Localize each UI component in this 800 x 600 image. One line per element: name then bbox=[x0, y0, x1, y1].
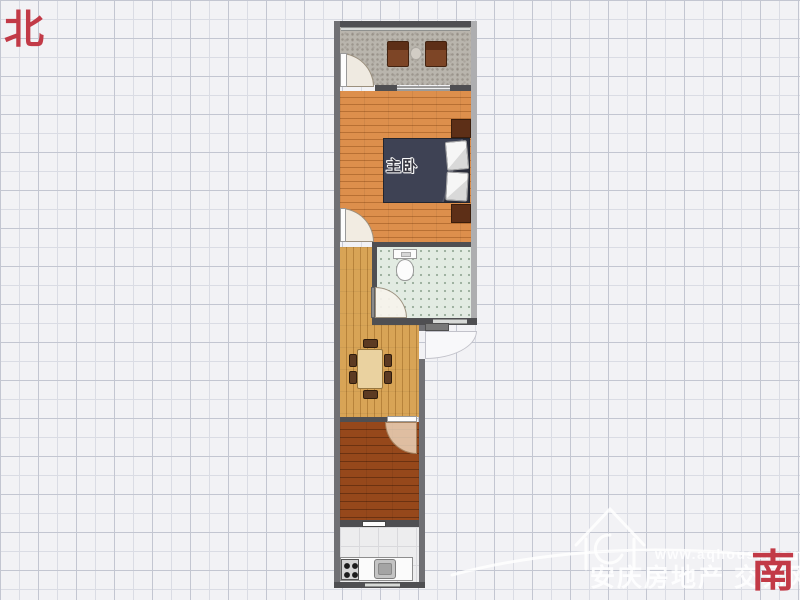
dining-chair-icon bbox=[349, 354, 357, 367]
wall-east-lower-b bbox=[419, 359, 425, 588]
balcony-chair-icon bbox=[387, 41, 409, 67]
dining-chair-icon bbox=[384, 371, 392, 384]
toilet-tank-icon bbox=[393, 249, 417, 259]
dining-chair-icon bbox=[349, 371, 357, 384]
compass-north-label: 北 bbox=[4, 10, 44, 50]
nightstand-icon bbox=[451, 204, 471, 223]
floorplan-canvas: 北 南 主卧 bbox=[0, 0, 800, 600]
balcony-window bbox=[341, 27, 470, 31]
wall-bedroom-south bbox=[372, 242, 471, 247]
toilet-bowl-icon bbox=[396, 259, 414, 281]
dining-table-icon bbox=[357, 349, 383, 389]
balcony-chair-icon bbox=[425, 41, 447, 67]
dining-chair-icon bbox=[384, 354, 392, 367]
entry-door-leaf bbox=[425, 323, 449, 331]
second-bedroom-door-leaf bbox=[387, 416, 417, 422]
hallway-floor bbox=[340, 247, 372, 325]
nightstand-icon bbox=[451, 119, 471, 138]
entry-door-swing bbox=[425, 331, 477, 359]
balcony-door-leaf bbox=[340, 53, 347, 87]
sink-icon bbox=[374, 559, 396, 579]
pillow-icon bbox=[445, 171, 468, 201]
balcony-slider-window bbox=[397, 86, 450, 91]
kitchen-pass-door bbox=[362, 521, 386, 527]
wall-east-upper bbox=[471, 21, 477, 325]
balcony-basin-icon bbox=[410, 47, 422, 60]
dining-chair-icon bbox=[363, 390, 378, 399]
bathroom-door-leaf bbox=[371, 287, 375, 318]
kitchen-window bbox=[365, 583, 400, 587]
compass-south-label: 南 bbox=[751, 550, 795, 594]
bedroom-door-leaf bbox=[340, 208, 346, 242]
wall-balcony-divider-a bbox=[375, 85, 397, 91]
wall-dining-south bbox=[340, 417, 387, 422]
dining-chair-icon bbox=[363, 339, 378, 348]
master-bedroom-label: 主卧 bbox=[386, 155, 418, 176]
pillow-icon bbox=[445, 140, 469, 171]
stove-icon bbox=[341, 559, 359, 580]
wall-west bbox=[334, 21, 340, 588]
wall-balcony-divider-b bbox=[450, 85, 471, 91]
wall-bathroom-west bbox=[372, 247, 377, 287]
